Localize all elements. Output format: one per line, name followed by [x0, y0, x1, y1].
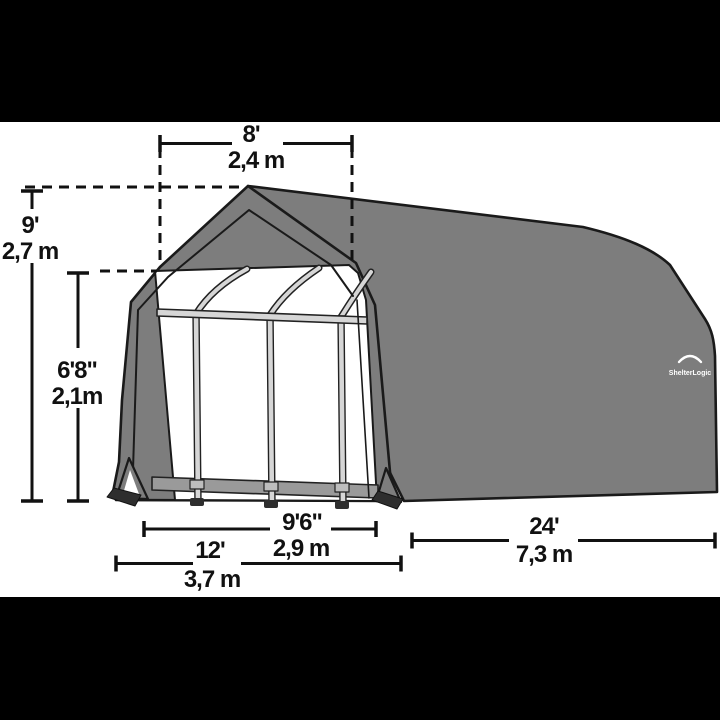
leg-foot — [335, 501, 349, 509]
dim-label-metric: 2,1m — [52, 383, 103, 410]
dim-label-imperial: 24' — [529, 513, 559, 540]
frame-leg — [267, 314, 275, 504]
dim-label-imperial: 9' — [21, 212, 38, 239]
shelter-dimension-diagram: ShelterLogic 8' 2,4 m 9' 2,7 m — [0, 0, 720, 720]
frame-leg — [193, 312, 201, 503]
dim-label-metric: 7,3 m — [516, 541, 572, 568]
dim-label-metric: 3,7 m — [184, 566, 240, 593]
leg-foot — [264, 500, 278, 508]
logo-text: ShelterLogic — [669, 370, 712, 377]
dim-label-imperial: 8' — [242, 121, 259, 148]
frame-leg — [338, 316, 346, 505]
letterbox-bottom — [0, 597, 720, 720]
dim-label-metric: 2,9 m — [273, 535, 329, 562]
diagram-stage: ShelterLogic 8' 2,4 m 9' 2,7 m — [0, 0, 720, 720]
dim-label-imperial: 12' — [195, 537, 225, 564]
leg-collar — [335, 483, 349, 492]
dim-label-metric: 2,7 m — [2, 238, 58, 265]
leg-collar — [190, 480, 204, 489]
letterbox-top — [0, 0, 720, 122]
leg-collar — [264, 482, 278, 491]
leg-foot — [190, 498, 204, 506]
dim-label-imperial: 9'6" — [282, 509, 322, 536]
dim-label-imperial: 6'8" — [57, 357, 97, 384]
dim-label-metric: 2,4 m — [228, 147, 284, 174]
